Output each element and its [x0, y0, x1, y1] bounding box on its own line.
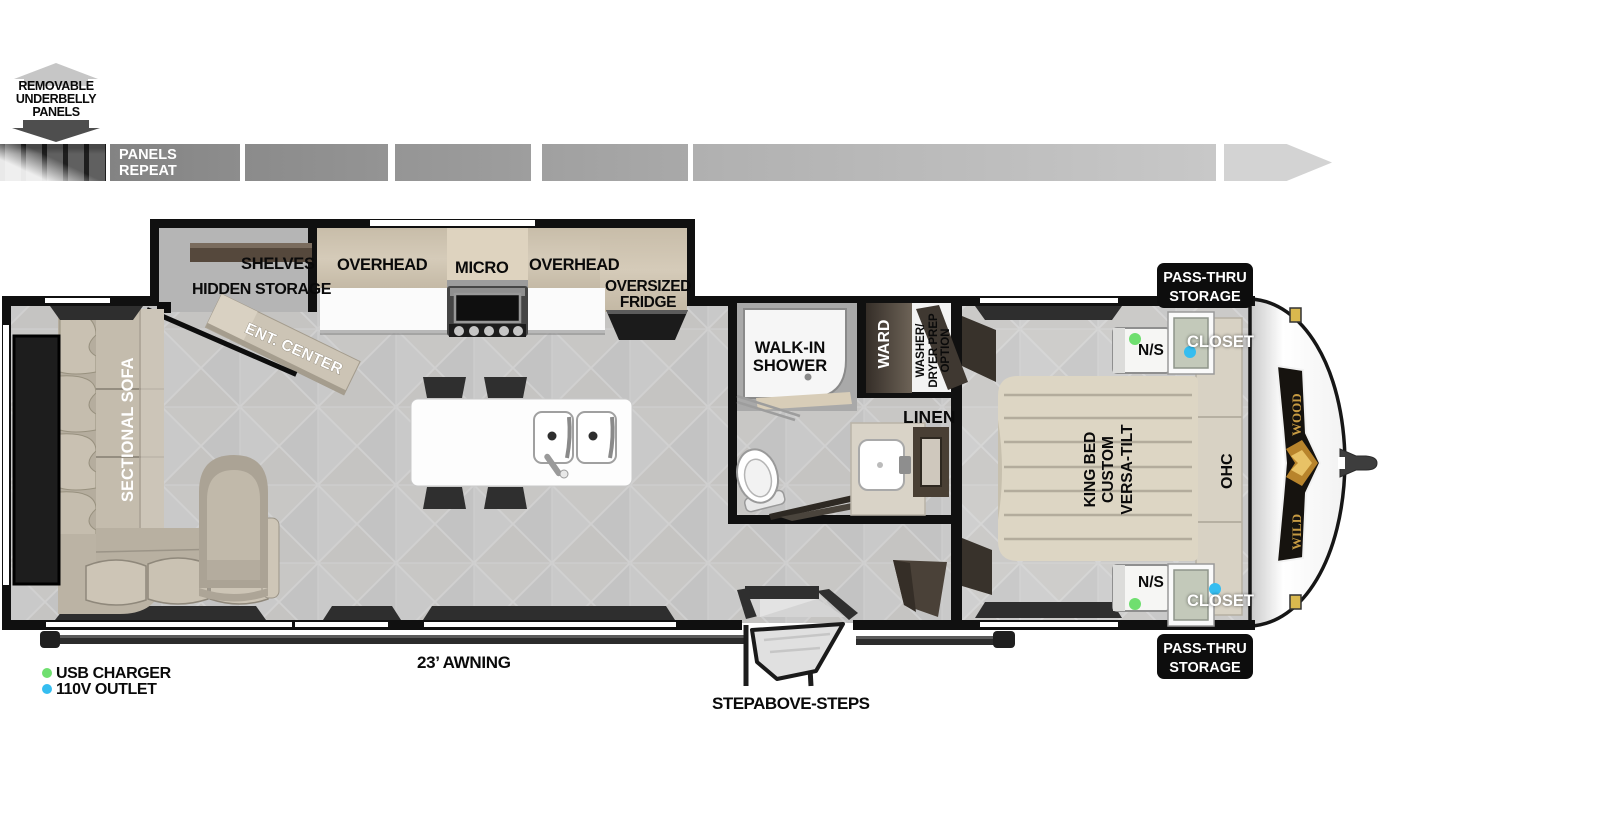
svg-text:WILD: WILD — [1289, 514, 1304, 550]
svg-text:WOOD: WOOD — [1289, 393, 1304, 436]
